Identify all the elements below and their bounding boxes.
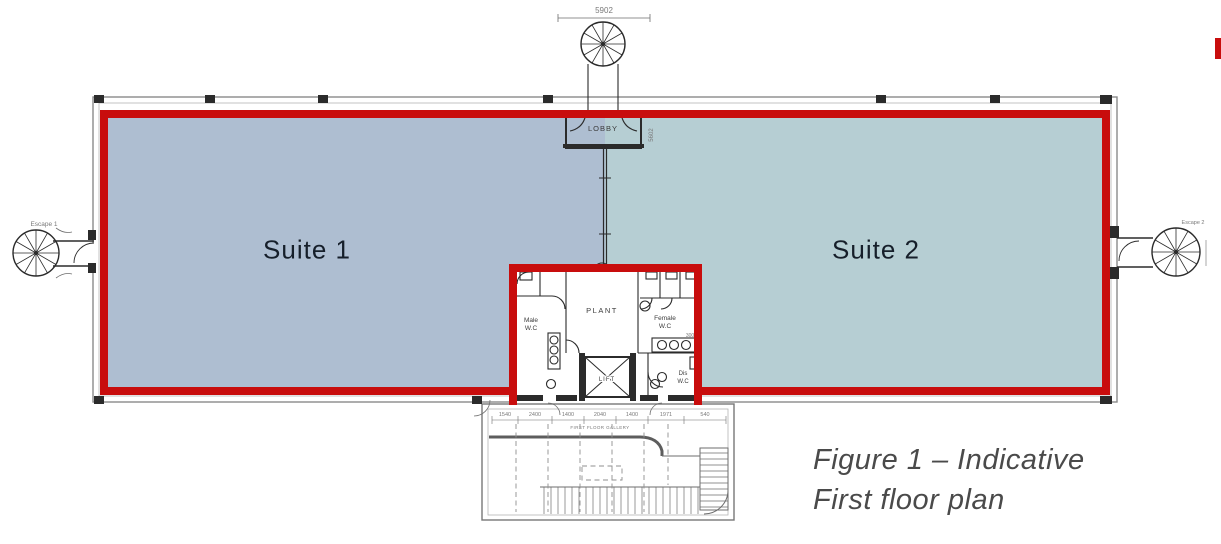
gallery-dimensions: 1540 2400 1400 2040 1400 1971 540 [499, 412, 710, 418]
svg-text:2400: 2400 [529, 412, 541, 418]
svg-text:2040: 2040 [594, 412, 606, 418]
male-wc-label: Male [524, 317, 538, 324]
female-wc-label-2: W.C [659, 323, 672, 330]
svg-text:1400: 1400 [562, 412, 574, 418]
dis-wc-label-2: W.C [677, 379, 689, 385]
suite-2-label: Suite 2 [832, 235, 920, 266]
svg-text:1540: 1540 [499, 412, 511, 418]
top-spiral-stair: 5902 [558, 6, 650, 111]
caption-line-1: Figure 1 – Indicative [813, 440, 1085, 480]
escape-1-label: Escape 1 [30, 221, 57, 228]
left-spiral-stair: Escape 1 [13, 221, 96, 278]
escape-2-label: Escape 2 [1182, 220, 1205, 226]
figure-canvas: 1540 2400 1400 2040 1400 1971 540 FIRST … [0, 0, 1221, 544]
suite-1-label: Suite 1 [263, 235, 351, 266]
svg-text:1400: 1400 [626, 412, 638, 418]
gallery-section: 1540 2400 1400 2040 1400 1971 540 FIRST … [474, 400, 734, 520]
female-wc-label: Female [654, 315, 676, 322]
male-wc-label-2: W.C [525, 325, 538, 332]
plant-label: PLANT [586, 306, 618, 315]
lobby-side-dimension: 5602 [649, 128, 655, 142]
figure-caption: Figure 1 – Indicative First floor plan [813, 440, 1085, 520]
dis-wc-label: Dis [679, 371, 688, 377]
lift-label: LIFT [599, 377, 615, 383]
lobby-label: LOBBY [588, 124, 618, 133]
svg-text:1971: 1971 [660, 412, 672, 418]
gallery-label: FIRST FLOOR GALLERY [570, 425, 629, 430]
top-stair-dimension: 5902 [595, 6, 613, 15]
caption-line-2: First floor plan [813, 480, 1085, 520]
edge-red-fragment [1215, 38, 1221, 59]
gallery-stair-right [700, 448, 728, 510]
right-spiral-stair: Escape 2 [1110, 220, 1206, 279]
svg-text:540: 540 [700, 412, 709, 418]
